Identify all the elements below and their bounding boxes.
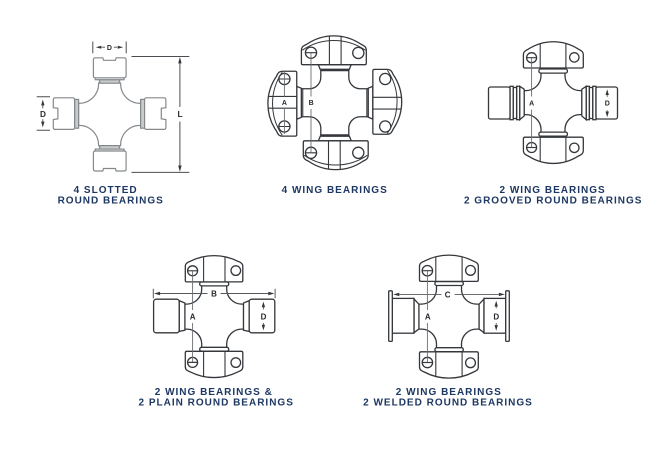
- svg-text:4 SLOTTED: 4 SLOTTED: [74, 185, 138, 196]
- svg-text:4 WING BEARINGS: 4 WING BEARINGS: [282, 185, 388, 196]
- svg-text:B: B: [309, 100, 314, 107]
- svg-text:D: D: [40, 110, 46, 119]
- svg-text:A: A: [529, 100, 534, 107]
- svg-text:2 WING BEARINGS: 2 WING BEARINGS: [500, 185, 606, 196]
- svg-text:ROUND BEARINGS: ROUND BEARINGS: [58, 196, 164, 207]
- svg-text:A: A: [425, 312, 431, 321]
- svg-text:A: A: [282, 100, 287, 107]
- svg-text:2 GROOVED ROUND BEARINGS: 2 GROOVED ROUND BEARINGS: [464, 196, 642, 207]
- svg-text:2 WELDED ROUND BEARINGS: 2 WELDED ROUND BEARINGS: [363, 398, 533, 409]
- svg-text:D: D: [107, 45, 112, 52]
- svg-text:2 WING BEARINGS: 2 WING BEARINGS: [396, 387, 502, 398]
- svg-text:D: D: [605, 101, 610, 108]
- svg-text:2 PLAIN ROUND BEARINGS: 2 PLAIN ROUND BEARINGS: [139, 398, 294, 409]
- svg-text:B: B: [211, 289, 217, 298]
- svg-text:L: L: [177, 110, 182, 119]
- svg-text:2 WING BEARINGS &: 2 WING BEARINGS &: [155, 387, 273, 398]
- svg-text:A: A: [190, 312, 196, 321]
- svg-text:C: C: [445, 290, 451, 299]
- svg-text:D: D: [261, 312, 267, 321]
- svg-text:D: D: [493, 312, 499, 321]
